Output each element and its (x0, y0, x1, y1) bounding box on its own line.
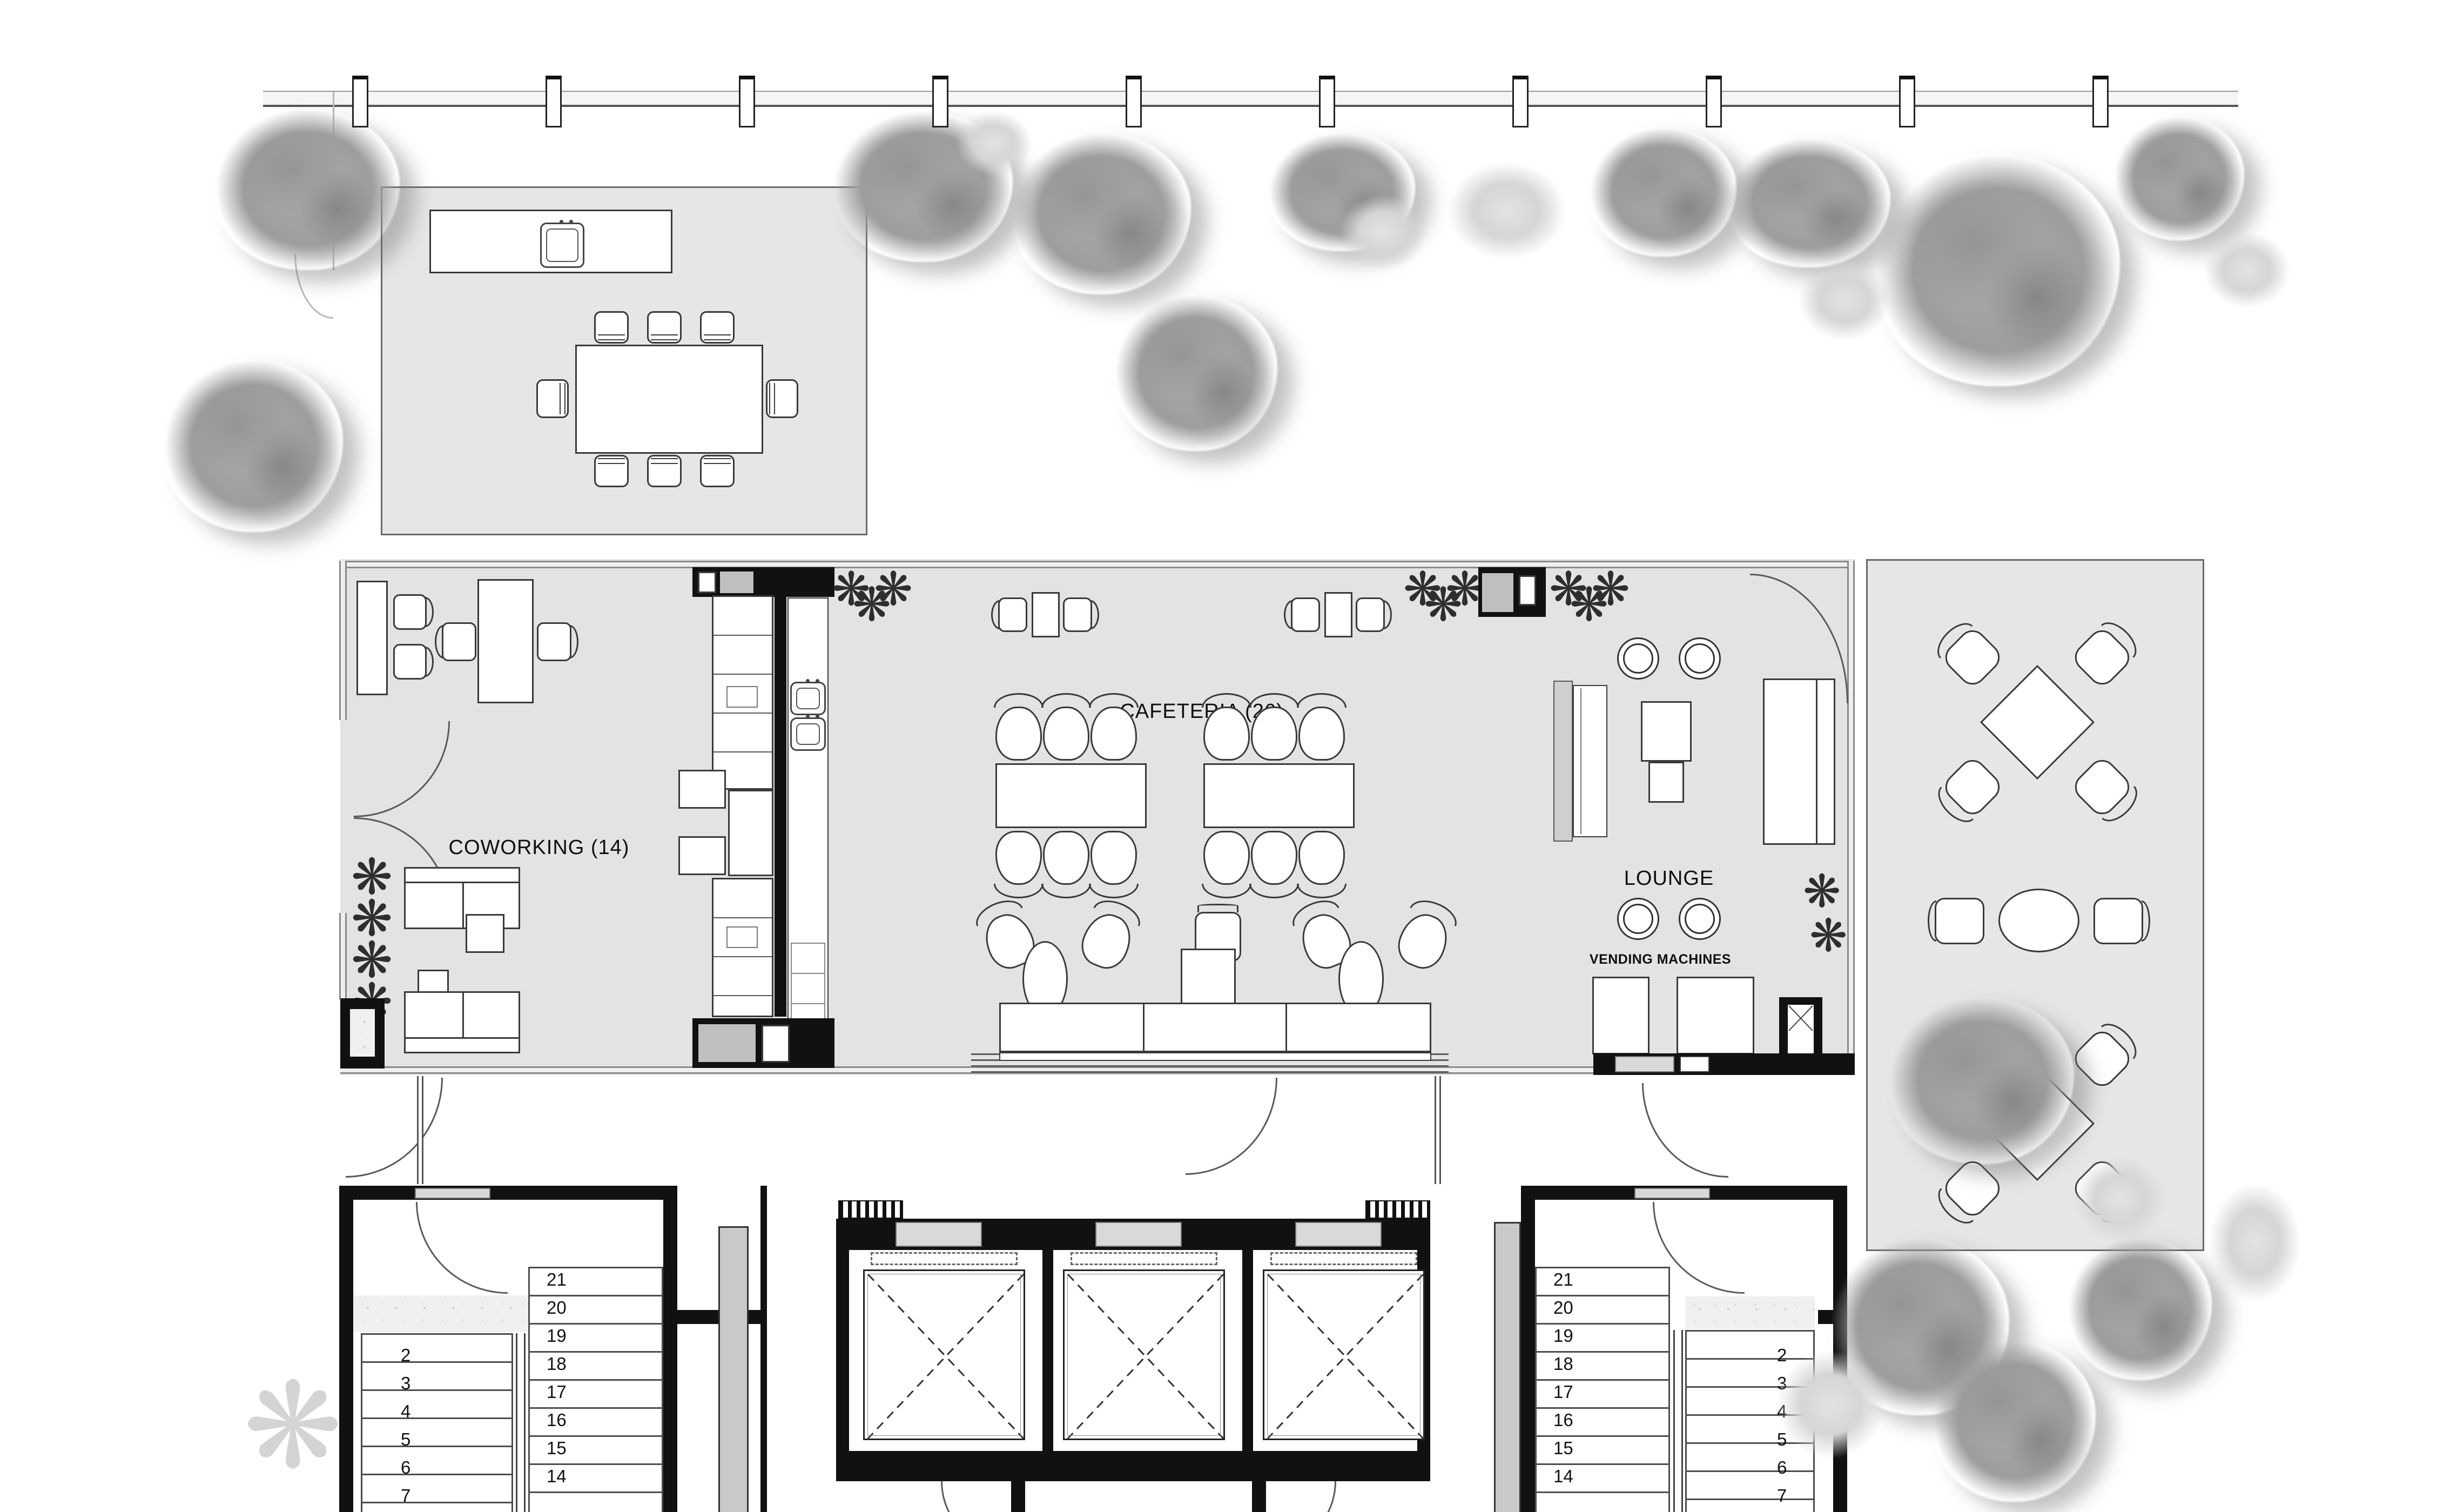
core-partition (1818, 1310, 1847, 1324)
tree (1591, 127, 1736, 257)
sofa-seat (1573, 685, 1607, 837)
corridor-wall (417, 1076, 423, 1184)
corridor-wall (1435, 1076, 1441, 1184)
kitchen-north-door-block (718, 570, 755, 595)
stair-step-number: 15 (547, 1439, 567, 1457)
stair-step-number: 3 (1777, 1374, 1787, 1392)
dining-chair (647, 455, 682, 487)
stair-step-number: 5 (1777, 1430, 1787, 1448)
cafe-chair (1203, 831, 1250, 885)
plant-icon: ❋ (1809, 913, 1847, 958)
lounge-pouf (1679, 637, 1721, 680)
shaft-wall (1242, 1250, 1253, 1451)
core-wall (1833, 1186, 1847, 1512)
fence-post (932, 76, 948, 127)
stair-step-number: 6 (1777, 1459, 1787, 1476)
elevator-door-mechanism (871, 1252, 1018, 1265)
kitchen-partition-wall (775, 595, 786, 1017)
shaft-southeast-interior (1788, 1005, 1814, 1058)
fence-post (1126, 76, 1142, 127)
stair-step-number: 20 (1553, 1299, 1573, 1316)
tree (1448, 162, 1566, 259)
stair-step-number: 5 (401, 1430, 410, 1448)
stair-step-number: 7 (401, 1487, 410, 1504)
cafe-chair (995, 707, 1042, 761)
kitchen-unit (678, 770, 726, 809)
stair-step-number: 7 (1777, 1487, 1787, 1504)
lobby-wall-stub (1011, 1481, 1025, 1512)
shaft-wall (836, 1250, 849, 1451)
dining-chair (647, 311, 682, 344)
coworking-wall-desk (356, 581, 388, 695)
kitchen-north-niche (698, 572, 716, 593)
site-path-line (333, 92, 334, 270)
stair-step-number: 19 (547, 1327, 567, 1345)
tree (2204, 232, 2290, 308)
stair-flight-lower (361, 1333, 513, 1512)
cafe-chair (1063, 597, 1092, 632)
stair-step-number: 19 (1553, 1327, 1573, 1345)
elevator-door-sill (1095, 1222, 1182, 1247)
cafe-chair (1251, 831, 1297, 885)
expansion-joint-ticks (838, 1200, 903, 1219)
stair-step-number: 21 (547, 1271, 567, 1288)
stair-step-number: 21 (1553, 1271, 1573, 1288)
cafe-table-6seat (1203, 763, 1355, 828)
elevator-car (1063, 1269, 1225, 1440)
lounge-table (1641, 701, 1692, 762)
tree (1269, 132, 1415, 251)
site-path-curve (294, 254, 333, 319)
elevator-door-sill (896, 1222, 982, 1247)
stair-step-number: 2 (1777, 1346, 1787, 1364)
tree (1339, 194, 1426, 270)
coworking-label: COWORKING (14) (420, 836, 658, 859)
terrace-chair (2093, 898, 2143, 944)
tree (956, 111, 1032, 176)
stair-rail (1673, 1330, 1683, 1512)
tree (2209, 1183, 2301, 1302)
cafe-chair (1291, 597, 1320, 632)
lounge-pouf (1679, 898, 1721, 940)
dining-chair (536, 379, 569, 418)
stair-step-number: 3 (401, 1374, 410, 1392)
vending-machine (1592, 977, 1650, 1054)
stair-step-number: 16 (1553, 1411, 1573, 1429)
cafe-chair (1251, 707, 1297, 761)
stair-step-number: 18 (1553, 1355, 1573, 1373)
tree (2069, 1237, 2212, 1380)
west-window-band-upper (339, 561, 347, 720)
cafe-chair (1043, 707, 1089, 761)
kitchen-island-block (728, 790, 773, 876)
plant-icon: ❋ (1803, 869, 1841, 914)
tree (1115, 294, 1277, 451)
dining-chair (594, 455, 629, 487)
fence-post (1319, 76, 1335, 127)
east-window-band (1847, 561, 1855, 1074)
dining-chair (766, 379, 798, 418)
office-chair (537, 622, 571, 661)
kitchen-unit (678, 836, 726, 875)
west-window-band-lower (339, 913, 347, 999)
south-door-sill (1615, 1056, 1674, 1072)
kitchen-sink-basin (790, 717, 826, 751)
vending-label: VENDING MACHINES (1565, 952, 1755, 967)
shaft-southwest-interior (350, 1009, 375, 1057)
terrace-chair (1935, 898, 1984, 944)
bench-sofa (999, 1003, 1431, 1052)
corridor-door-arc (1642, 1083, 1728, 1178)
vending-machine (1677, 977, 1754, 1054)
elevator-door-mechanism (1270, 1252, 1417, 1265)
core-ramp-strip (718, 1226, 749, 1512)
bench-divider (1285, 1004, 1287, 1051)
plant-icon: ❋ (1591, 566, 1630, 613)
fence-post (2092, 76, 2109, 127)
stair-step-number: 4 (1777, 1402, 1787, 1420)
dining-chair (594, 311, 629, 344)
cafe-chair (1090, 707, 1137, 761)
cafe-table-2seat (1032, 592, 1060, 637)
tree (1831, 1237, 2009, 1415)
tree (1877, 154, 2120, 386)
dining-chair (700, 455, 735, 487)
sofa-seam (1580, 688, 1581, 834)
tree (1799, 259, 1890, 340)
tree (1728, 138, 1890, 267)
stair-landing (1685, 1296, 1815, 1329)
fence-post (1899, 76, 1915, 127)
lobby-door-arc (941, 1481, 1011, 1512)
terrace-round-table (1998, 889, 2079, 952)
elevator-car (1263, 1269, 1425, 1440)
tree (165, 359, 343, 532)
tree (216, 108, 400, 270)
lounge-label: LOUNGE (1593, 867, 1745, 890)
corridor-door-arc (346, 1078, 443, 1178)
sofa-back (1553, 681, 1573, 842)
fence-post (1706, 76, 1722, 127)
lounge-table-extension (1648, 762, 1684, 803)
desk-chair (393, 644, 427, 680)
tree (1934, 1340, 2096, 1502)
office-chair (442, 622, 476, 661)
desk-chair (393, 594, 427, 630)
core-wall (1521, 1186, 1535, 1512)
stair-step-number: 16 (547, 1411, 567, 1429)
kitchen-sink-basin (790, 682, 826, 715)
lobby-wall-stub (1252, 1481, 1266, 1512)
bench-divider (1143, 1004, 1145, 1051)
fence-post (546, 76, 562, 127)
cafe-chair (1356, 597, 1385, 632)
cafe-chair (1090, 831, 1137, 885)
south-niche (1680, 1056, 1709, 1072)
stair-rail (516, 1333, 526, 1512)
unit-divider (1816, 680, 1817, 843)
stair-step-number: 14 (1553, 1467, 1573, 1485)
elevator-door-sill (1295, 1222, 1382, 1247)
bench-front-rail (999, 1052, 1431, 1061)
cafe-chair (1298, 831, 1345, 885)
core-wall (663, 1186, 677, 1512)
shaft-niche (1519, 575, 1536, 606)
core-wall (760, 1186, 767, 1512)
kitchen-south-niche (762, 1025, 790, 1063)
counter-sink (540, 223, 584, 268)
stair-flight-lower (1685, 1330, 1815, 1512)
stair-step-number: 14 (547, 1467, 567, 1485)
cafe-chair (995, 831, 1042, 885)
stair-step-number: 4 (401, 1402, 410, 1420)
cabinet-inner-box (726, 926, 758, 948)
fence-post (1512, 76, 1529, 127)
lounge-pouf (1617, 898, 1659, 940)
cafe-chair (998, 597, 1027, 632)
tree (2115, 116, 2244, 240)
lounge-media-unit (1763, 678, 1835, 845)
cafe-table-2seat (1324, 592, 1352, 637)
side-table (466, 914, 504, 953)
cafe-chair (1298, 707, 1345, 761)
stair-step-number: 6 (401, 1459, 410, 1476)
ground-plant-icon: ❋ (243, 1367, 342, 1486)
stair-step-number: 20 (547, 1299, 567, 1316)
fence-post (739, 76, 755, 127)
cabinet-inner-box (726, 686, 758, 708)
elevator-south-wall (836, 1451, 1430, 1481)
kitchen-south-door-block (697, 1023, 757, 1064)
cafe-chair (1043, 831, 1089, 885)
elevator-car (863, 1269, 1025, 1440)
core-door-sill (1634, 1188, 1710, 1199)
elevator-lobby (836, 1481, 1430, 1512)
coworking-meeting-table (477, 579, 534, 703)
lounge-pouf (1617, 637, 1659, 680)
floor-plan: COWORKING (14) ❋ ❋ ❋ ❋ ❋ ❋ ❋ ❋ ❋ ❋ CAFET… (0, 0, 2464, 1512)
shaft-wall (1042, 1250, 1053, 1451)
lobby-door-arc (1266, 1481, 1336, 1512)
shaft-duct (1480, 572, 1515, 614)
stair-step-number: 15 (1553, 1439, 1573, 1457)
cafe-chair (1203, 707, 1250, 761)
expansion-joint-ticks (1365, 1200, 1430, 1219)
corridor-door-arc (1186, 1078, 1277, 1175)
stair-step-number: 2 (401, 1346, 410, 1364)
stair-step-number: 17 (547, 1383, 567, 1401)
elevator-door-mechanism (1071, 1252, 1217, 1265)
core-ramp-strip (1494, 1222, 1521, 1512)
stair-step-number: 17 (1553, 1383, 1573, 1401)
tree (1013, 132, 1191, 294)
dining-chair (700, 311, 735, 344)
core-door-sill (415, 1188, 490, 1199)
lounge-sofa-left (1553, 681, 1607, 842)
coworking-sofa (404, 991, 520, 1053)
cafe-table-6seat (995, 763, 1147, 828)
terrace-dining-table (575, 345, 763, 454)
plant-icon: ❋ (874, 566, 913, 613)
fence-post (352, 76, 368, 127)
core-wall (339, 1186, 677, 1200)
stair-step-number: 18 (547, 1355, 567, 1373)
